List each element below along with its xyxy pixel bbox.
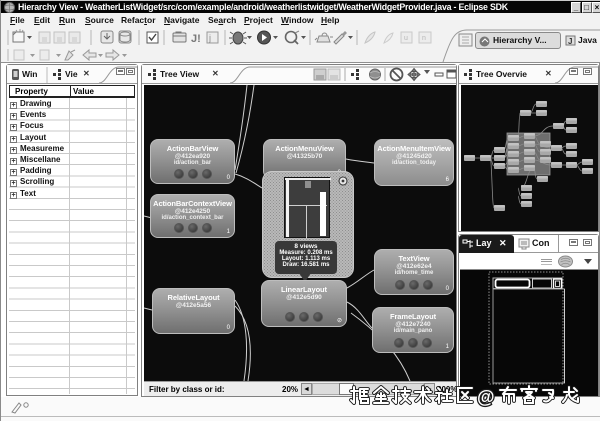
svg-text:u: u <box>404 35 408 42</box>
svg-text:J!: J! <box>191 33 201 45</box>
svg-text:n: n <box>422 35 426 42</box>
svg-text:j: j <box>208 33 211 43</box>
svg-text:@: @ <box>477 387 495 407</box>
svg-text:J: J <box>568 37 572 46</box>
